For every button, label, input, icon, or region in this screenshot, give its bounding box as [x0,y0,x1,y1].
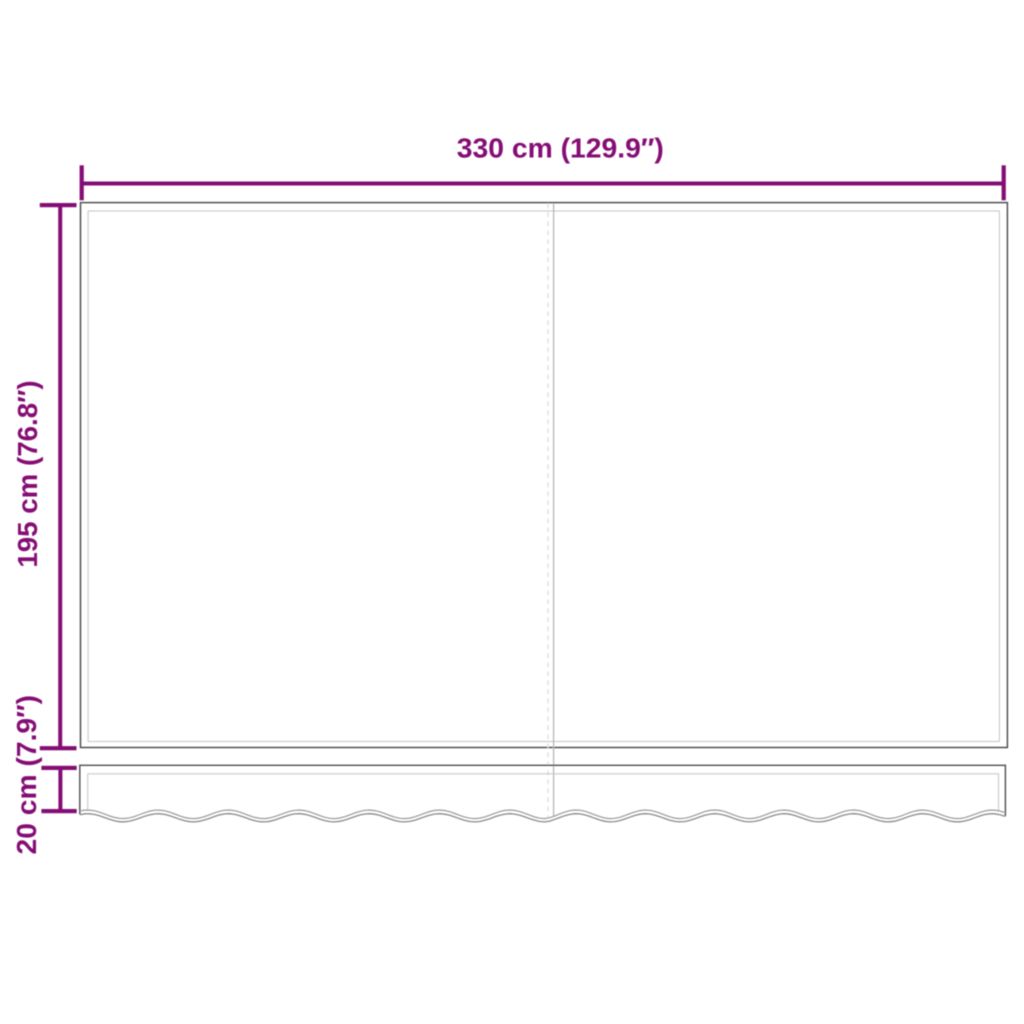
svg-text:20 cm (7.9″): 20 cm (7.9″) [11,695,42,855]
svg-text:330 cm (129.9″): 330 cm (129.9″) [457,132,664,163]
svg-text:195 cm (76.8″): 195 cm (76.8″) [12,380,43,567]
